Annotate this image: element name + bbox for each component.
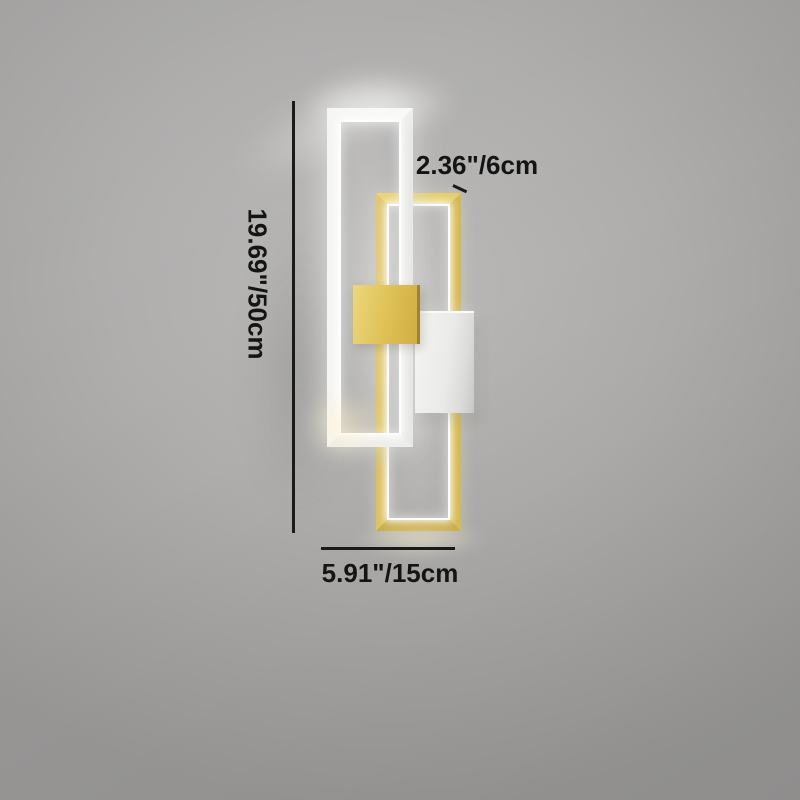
height-dimension-label: 19.69"/50cm xyxy=(242,208,273,359)
width-dimension-line xyxy=(321,547,455,550)
gold-mount-square xyxy=(353,285,420,344)
height-dimension-line xyxy=(292,101,295,533)
product-dimension-image: 19.69"/50cm 2.36"/6cm 5.91"/15cm xyxy=(0,0,800,800)
depth-dimension-label: 2.36"/6cm xyxy=(416,150,538,181)
width-dimension-label: 5.91"/15cm xyxy=(322,558,459,589)
white-mount-block xyxy=(415,311,474,413)
white-frame-led-strip xyxy=(339,120,401,435)
white-led-frame xyxy=(327,108,413,447)
depth-leader-tick xyxy=(452,184,467,193)
